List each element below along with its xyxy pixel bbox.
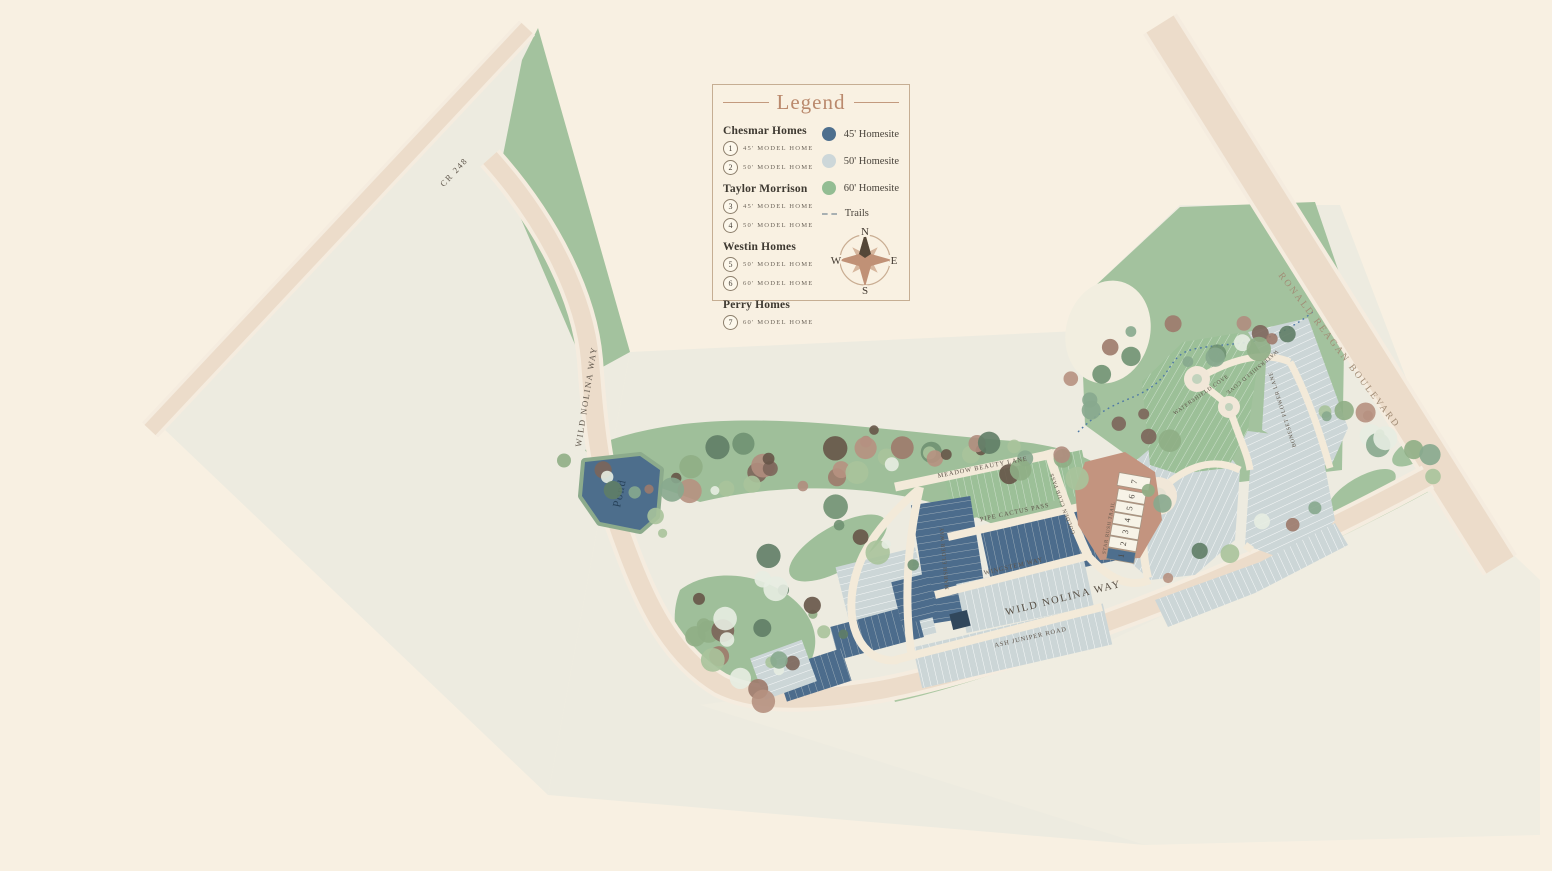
model-home-key: 2 50' MODEL HOME xyxy=(723,160,822,175)
trails-key: Trails xyxy=(822,208,899,219)
tree-icon xyxy=(1237,316,1252,331)
tree-icon xyxy=(839,629,849,639)
model-number-badge: 2 xyxy=(723,160,738,175)
tree-icon xyxy=(853,529,869,545)
tree-icon xyxy=(718,481,734,497)
tree-icon xyxy=(1425,469,1441,485)
homesite-60-swatch xyxy=(822,181,836,195)
tree-icon xyxy=(834,520,845,531)
tree-icon xyxy=(817,625,830,638)
builder-name: Westin Homes xyxy=(723,241,822,253)
tree-icon xyxy=(823,436,847,460)
tree-icon xyxy=(1138,409,1149,420)
tree-icon xyxy=(604,481,622,499)
tree-icon xyxy=(685,626,705,646)
homesite-key-50: 50' Homesite xyxy=(822,154,899,168)
tree-icon xyxy=(629,486,641,498)
tree-icon xyxy=(1007,440,1021,454)
legend-title-row: Legend xyxy=(723,90,899,115)
tree-icon xyxy=(823,494,848,519)
legend-title: Legend xyxy=(777,90,846,115)
model-home-label: 45' MODEL HOME xyxy=(743,145,814,152)
model-home-label: 45' MODEL HOME xyxy=(743,203,814,210)
tree-icon xyxy=(660,478,684,502)
tree-icon xyxy=(732,433,754,455)
tree-icon xyxy=(701,648,725,672)
tree-icon xyxy=(1183,356,1194,367)
tree-icon xyxy=(705,435,729,459)
tree-icon xyxy=(855,437,877,459)
tree-icon xyxy=(1266,333,1277,344)
tree-icon xyxy=(720,632,735,647)
tree-icon xyxy=(1142,484,1155,497)
builder-name: Perry Homes xyxy=(723,299,822,311)
tree-icon xyxy=(1153,494,1171,512)
tree-icon xyxy=(756,544,780,568)
tree-icon xyxy=(1092,365,1111,384)
tree-icon xyxy=(752,690,775,713)
legend-rule-left xyxy=(723,102,769,103)
homesite-45-swatch xyxy=(822,127,836,141)
tree-icon xyxy=(770,651,787,668)
compass-north-label: N xyxy=(861,226,869,238)
tree-icon xyxy=(1165,315,1182,332)
tree-icon xyxy=(1121,347,1140,366)
model-home-label: 50' MODEL HOME xyxy=(743,164,814,171)
tree-icon xyxy=(804,597,821,614)
tree-icon xyxy=(1053,446,1070,463)
model-number-badge: 7 xyxy=(723,315,738,330)
legend-rule-right xyxy=(854,102,900,103)
tree-icon xyxy=(693,593,705,605)
legend-builders: Chesmar Homes 1 45' MODEL HOME 2 50' MOD… xyxy=(723,117,822,334)
model-number-badge: 1 xyxy=(723,141,738,156)
tree-icon xyxy=(763,453,775,465)
legend-panel: Legend Chesmar Homes 1 45' MODEL HOME 2 … xyxy=(712,84,910,301)
tree-icon xyxy=(644,485,653,494)
model-home-label: 50' MODEL HOME xyxy=(743,222,814,229)
tree-icon xyxy=(891,436,914,459)
tree-icon xyxy=(1064,371,1079,386)
tree-icon xyxy=(710,486,719,495)
tree-icon xyxy=(1112,417,1126,431)
model-number-badge: 3 xyxy=(723,199,738,214)
tree-icon xyxy=(1221,544,1240,563)
tree-icon xyxy=(647,508,664,525)
compass-south-label: S xyxy=(862,285,868,297)
model-home-key: 5 50' MODEL HOME xyxy=(723,257,822,272)
tree-icon xyxy=(1159,429,1182,452)
trails-label: Trails xyxy=(845,208,869,219)
tree-icon xyxy=(679,455,702,478)
tree-icon xyxy=(1206,348,1225,367)
compass-east-label: E xyxy=(891,255,898,267)
tree-icon xyxy=(730,668,751,689)
tree-icon xyxy=(753,619,771,637)
tree-icon xyxy=(1065,467,1088,490)
tree-icon xyxy=(1279,326,1296,343)
homesite-key-45: 45' Homesite xyxy=(822,127,899,141)
builder-name: Taylor Morrison xyxy=(723,183,822,195)
tree-icon xyxy=(658,529,667,538)
model-home-label: 50' MODEL HOME xyxy=(743,261,814,268)
tree-icon xyxy=(798,481,809,492)
model-home-key: 4 50' MODEL HOME xyxy=(723,218,822,233)
tree-icon xyxy=(743,476,760,493)
model-number-badge: 4 xyxy=(723,218,738,233)
tree-icon xyxy=(557,454,571,468)
tree-icon xyxy=(978,432,1000,454)
tree-icon xyxy=(1102,339,1119,356)
model-number-badge: 5 xyxy=(723,257,738,272)
tree-icon xyxy=(1335,401,1354,420)
model-number-badge: 6 xyxy=(723,276,738,291)
homesite-50-swatch xyxy=(822,154,836,168)
tree-icon xyxy=(1082,401,1101,420)
tree-icon xyxy=(846,461,869,484)
tree-icon xyxy=(1192,543,1208,559)
model-home-key: 3 45' MODEL HOME xyxy=(723,199,822,214)
tree-icon xyxy=(1163,573,1173,583)
tree-icon xyxy=(885,457,899,471)
model-home-label: 60' MODEL HOME xyxy=(743,319,814,326)
model-home-key: 7 60' MODEL HOME xyxy=(723,315,822,330)
tree-icon xyxy=(1322,411,1332,421)
tree-icon xyxy=(869,425,879,435)
tree-icon xyxy=(1254,513,1270,529)
tree-icon xyxy=(908,559,919,570)
trails-dash-icon xyxy=(822,213,837,215)
model-home-key: 1 45' MODEL HOME xyxy=(723,141,822,156)
tree-icon xyxy=(882,540,891,549)
homesite-50-label: 50' Homesite xyxy=(844,156,899,167)
compass-west-label: W xyxy=(831,255,842,267)
homesite-key-60: 60' Homesite xyxy=(822,181,899,195)
model-home-label: 60' MODEL HOME xyxy=(743,280,814,287)
compass-rose-icon: N E S W xyxy=(827,222,903,298)
homesite-60-label: 60' Homesite xyxy=(844,183,899,194)
model-home-key: 6 60' MODEL HOME xyxy=(723,276,822,291)
tree-icon xyxy=(1356,403,1376,423)
tree-icon xyxy=(1419,444,1440,465)
tree-icon xyxy=(763,576,788,601)
tree-icon xyxy=(927,450,943,466)
tree-icon xyxy=(941,449,952,460)
homesite-45-label: 45' Homesite xyxy=(844,129,899,140)
builder-name: Chesmar Homes xyxy=(723,125,822,137)
tree-icon xyxy=(1141,429,1157,445)
tree-icon xyxy=(1308,501,1321,514)
tree-icon xyxy=(1286,518,1300,532)
tree-icon xyxy=(713,607,737,631)
tree-icon xyxy=(1126,326,1137,337)
